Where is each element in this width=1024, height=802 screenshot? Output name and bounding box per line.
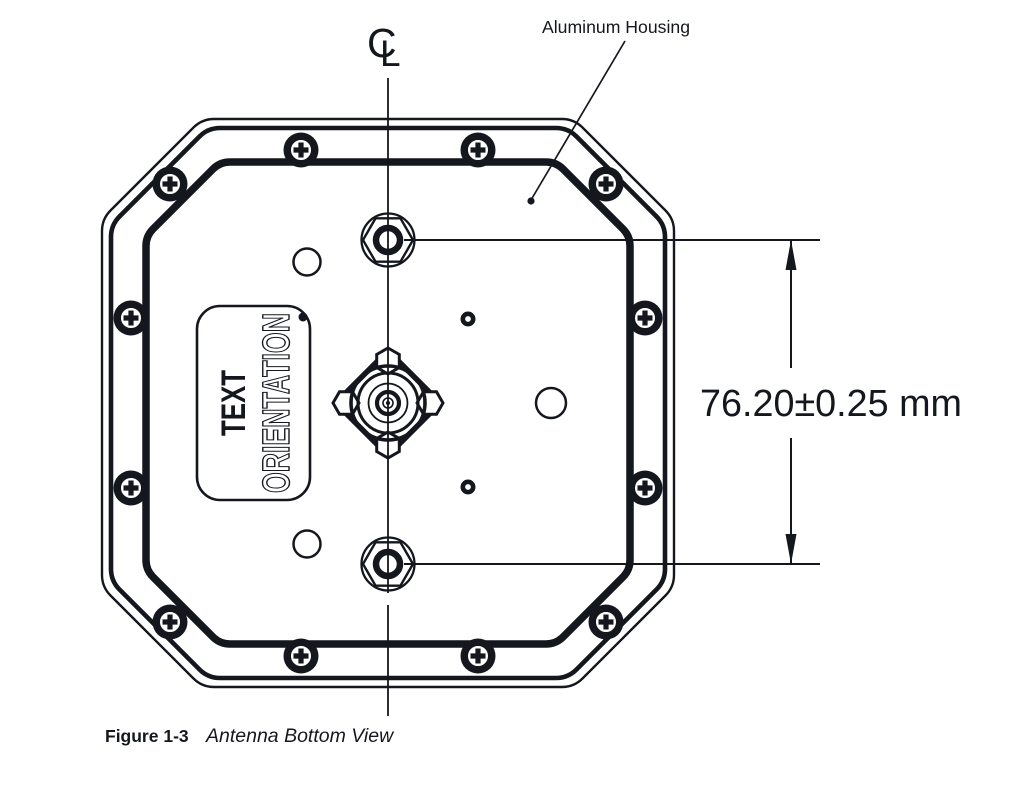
- housing-annotation-text: Aluminum Housing: [542, 17, 690, 37]
- centerline-symbol-l: L: [380, 33, 401, 74]
- phillips-screw: [114, 301, 149, 336]
- engraving-text-line2: ORIENTATION: [256, 313, 298, 493]
- leader-dot: [527, 197, 534, 204]
- phillips-screw: [284, 133, 319, 168]
- connector-nut: [333, 392, 359, 415]
- phillips-screw: [628, 301, 663, 336]
- phillips-screw: [461, 133, 496, 168]
- figure-caption: Figure 1-3 Antenna Bottom View: [105, 725, 395, 747]
- vent-hole: [536, 388, 566, 418]
- phillips-screw: [153, 167, 188, 202]
- phillips-screw: [461, 639, 496, 674]
- phillips-screw: [589, 167, 624, 202]
- phillips-screw: [284, 639, 319, 674]
- alignment-hole: [294, 531, 321, 558]
- small-pin-hole: [463, 482, 473, 492]
- small-pin-hole: [463, 314, 473, 324]
- dimension-arrow-down: [786, 534, 797, 564]
- figure-caption-title: Antenna Bottom View: [205, 725, 395, 747]
- phillips-screw: [628, 471, 663, 506]
- antenna-bottom-view-drawing: TEXT ORIENTATION C L Aluminum Housing 76…: [0, 0, 1024, 802]
- dimension-arrow-up: [786, 240, 797, 270]
- phillips-screw: [589, 605, 624, 640]
- phillips-screw: [114, 471, 149, 506]
- engraving-label: TEXT ORIENTATION: [197, 306, 310, 500]
- alignment-hole: [294, 249, 321, 276]
- connector-nut: [417, 392, 443, 415]
- phillips-screw: [153, 605, 188, 640]
- dimension-text: 76.20±0.25 mm: [700, 383, 962, 425]
- figure-caption-label: Figure 1-3: [105, 726, 189, 746]
- dimension-76mm: 76.20±0.25 mm: [404, 240, 962, 564]
- centerline-symbol: C L: [367, 20, 401, 74]
- engraving-text-line1: TEXT: [215, 370, 253, 436]
- engraving-corner-mark: [299, 313, 308, 322]
- document-page: TEXT ORIENTATION C L Aluminum Housing 76…: [0, 0, 1024, 802]
